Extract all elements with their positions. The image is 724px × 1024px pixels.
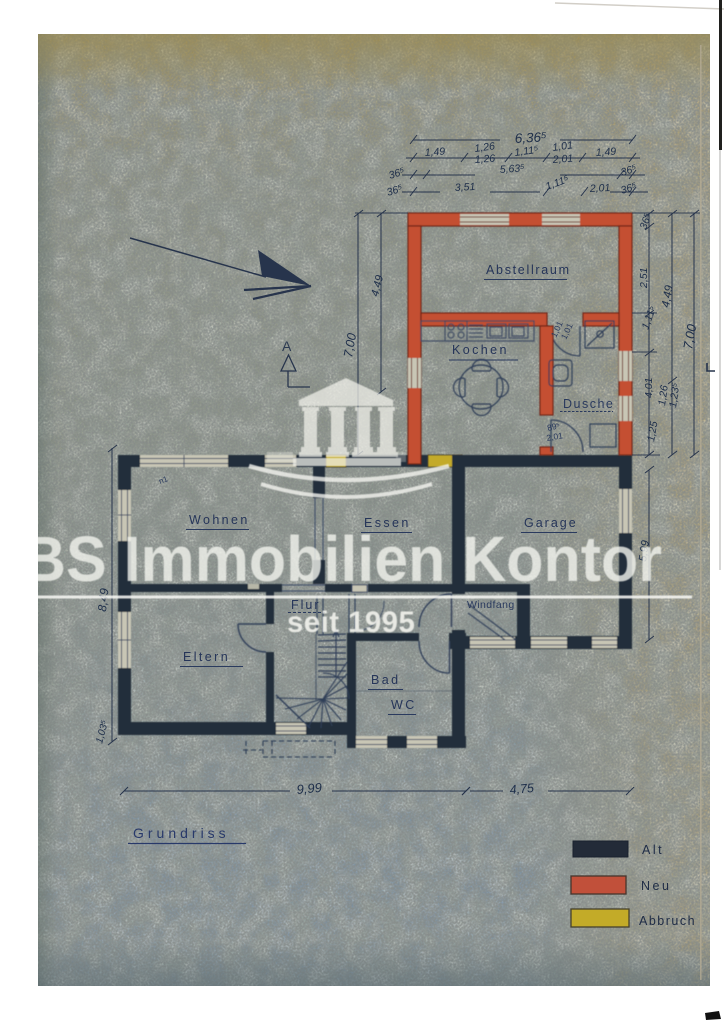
svg-text:Neu: Neu [641, 879, 671, 893]
svg-text:2,01: 2,01 [551, 153, 573, 166]
svg-text:1,49: 1,49 [595, 146, 616, 159]
svg-text:BS Immobilien Kontor: BS Immobilien Kontor [22, 523, 662, 595]
svg-text:1,49: 1,49 [424, 146, 445, 159]
svg-text:Bad: Bad [371, 673, 400, 687]
svg-text:seit 1995: seit 1995 [287, 606, 415, 639]
svg-text:Kochen: Kochen [452, 343, 509, 357]
svg-text:5,63⁵: 5,63⁵ [499, 162, 525, 176]
svg-text:4,75: 4,75 [509, 781, 535, 797]
svg-text:6,36⁵: 6,36⁵ [514, 129, 547, 146]
svg-text:4,01: 4,01 [643, 378, 655, 398]
svg-text:2,01: 2,01 [589, 182, 611, 195]
svg-text:9,99: 9,99 [296, 780, 323, 797]
svg-text:1,26: 1,26 [474, 153, 495, 166]
svg-text:2,51: 2,51 [638, 268, 650, 289]
svg-text:Eltern: Eltern [183, 650, 230, 664]
svg-text:Abbruch: Abbruch [639, 914, 696, 928]
svg-text:Grundriss: Grundriss [133, 825, 230, 841]
svg-text:WC: WC [391, 698, 417, 712]
svg-text:Windfang: Windfang [467, 599, 515, 611]
svg-text:Abstellraum: Abstellraum [486, 263, 571, 277]
svg-text:Alt: Alt [642, 843, 664, 857]
svg-text:Dusche: Dusche [563, 397, 614, 411]
svg-text:A: A [282, 338, 292, 354]
svg-text:3,51: 3,51 [455, 181, 476, 194]
